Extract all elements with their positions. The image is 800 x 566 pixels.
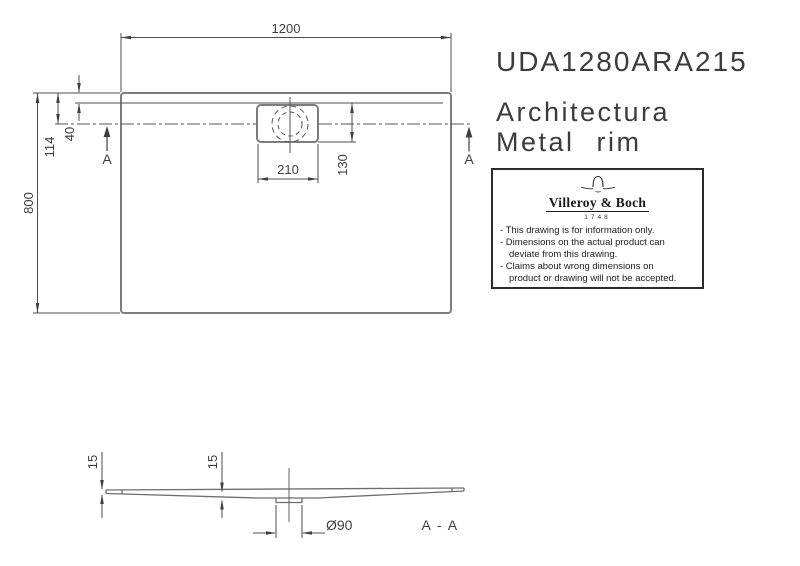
dimension-800-label: 800 bbox=[21, 192, 36, 214]
disclaimer-line: - This drawing is for information only. bbox=[500, 225, 700, 237]
drain-cutout-outline bbox=[257, 105, 318, 142]
arrowhead bbox=[258, 177, 268, 181]
villeroy-boch-amphora-icon bbox=[576, 174, 620, 196]
section-marker-right: A bbox=[464, 127, 474, 168]
drain-cutout bbox=[257, 97, 318, 153]
dimension-15-edge-label: 15 bbox=[85, 455, 100, 469]
arrowhead bbox=[100, 494, 104, 504]
dimension-1200-label: 1200 bbox=[272, 21, 301, 36]
dimension-15-centre-label: 15 bbox=[205, 455, 220, 469]
arrowhead bbox=[77, 83, 81, 93]
dimension-210: 210 bbox=[258, 144, 318, 183]
dimension-drain-diameter: Ø90 bbox=[253, 505, 353, 538]
amphora-dish-right bbox=[603, 187, 615, 189]
dimension-210-label: 210 bbox=[277, 162, 299, 177]
section-marker-left: A bbox=[102, 126, 112, 167]
arrowhead bbox=[100, 480, 104, 490]
arrowhead bbox=[220, 500, 224, 510]
amphora-dish-left bbox=[581, 187, 593, 189]
product-variant: Metal rim bbox=[496, 127, 642, 158]
section-view-label: A - A bbox=[421, 517, 458, 533]
arrowhead bbox=[308, 177, 318, 181]
disclaimer-line: deviate from this drawing. bbox=[500, 249, 700, 261]
arrowhead bbox=[350, 103, 354, 113]
disclaimer-line: product or drawing will not be accepted. bbox=[500, 273, 700, 285]
manufacturer-info-box: Villeroy & Boch 1748 - This drawing is f… bbox=[491, 168, 704, 289]
amphora-bowl bbox=[594, 191, 601, 192]
section-arrow-head bbox=[104, 126, 111, 137]
arrowhead bbox=[121, 36, 131, 40]
arrowhead bbox=[56, 114, 60, 124]
profile-bottom-line bbox=[106, 491, 464, 498]
dimension-114: 114 bbox=[42, 93, 60, 157]
section-arrow-head bbox=[466, 127, 473, 138]
arrowhead bbox=[36, 303, 40, 313]
brand-name: Villeroy & Boch bbox=[546, 196, 650, 212]
arrowhead bbox=[220, 483, 224, 493]
dimension-15-centre: 15 bbox=[205, 452, 224, 518]
plan-view: 1200 800 114 bbox=[21, 21, 474, 313]
arrowhead bbox=[56, 93, 60, 103]
dimension-114-label: 114 bbox=[42, 137, 57, 158]
section-marker-label: A bbox=[464, 151, 474, 167]
disclaimer-notes: - This drawing is for information only. … bbox=[493, 225, 702, 285]
dimension-130: 130 bbox=[318, 103, 356, 176]
dimension-130-label: 130 bbox=[335, 154, 350, 176]
disclaimer-line: - Claims about wrong dimensions on bbox=[500, 261, 700, 273]
arrowhead bbox=[350, 132, 354, 142]
dimension-40: 40 bbox=[62, 75, 81, 141]
disclaimer-line: - Dimensions on the actual product can bbox=[500, 237, 700, 249]
product-series: Architectura bbox=[496, 97, 670, 128]
arrowhead bbox=[36, 93, 40, 103]
technical-drawing-sheet: 1200 800 114 bbox=[0, 0, 800, 566]
product-code: UDA1280ARA215 bbox=[496, 46, 748, 78]
dimension-40-label: 40 bbox=[62, 127, 77, 141]
brand-established-year: 1748 bbox=[584, 214, 610, 221]
arrowhead bbox=[441, 36, 451, 40]
section-marker-label: A bbox=[102, 151, 112, 167]
section-view: 15 15 Ø90 A - A bbox=[85, 452, 464, 538]
arrowhead bbox=[266, 531, 276, 535]
dimension-1200: 1200 bbox=[121, 21, 451, 92]
profile-top-line bbox=[106, 488, 464, 490]
dimension-15-edge: 15 bbox=[85, 452, 104, 518]
dimension-800: 800 bbox=[21, 93, 120, 313]
amphora-arch bbox=[593, 177, 603, 188]
dimension-drain-diameter-label: Ø90 bbox=[326, 517, 353, 533]
arrowhead bbox=[302, 531, 312, 535]
arrowhead bbox=[77, 103, 81, 113]
section-profile bbox=[106, 488, 464, 503]
